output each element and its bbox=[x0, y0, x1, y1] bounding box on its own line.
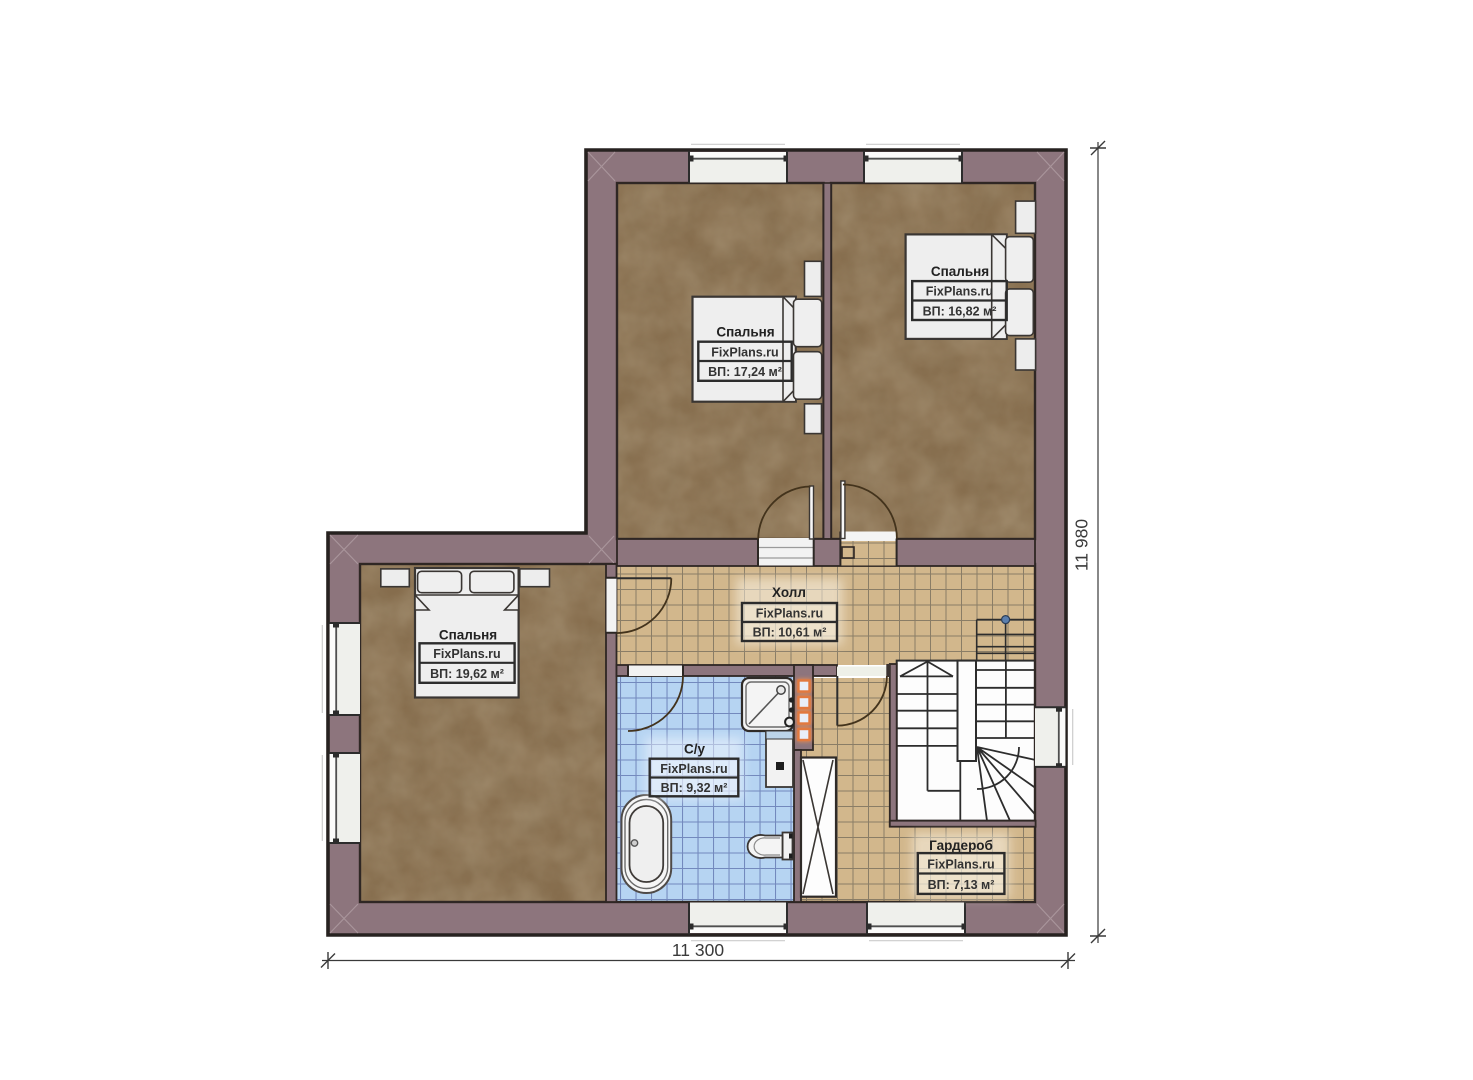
svg-text:FixPlans.ru: FixPlans.ru bbox=[711, 345, 778, 359]
svg-text:ВП: 17,24 м²: ВП: 17,24 м² bbox=[708, 365, 782, 379]
svg-text:ВП: 10,61 м²: ВП: 10,61 м² bbox=[753, 626, 827, 640]
svg-text:ВП: 19,62 м²: ВП: 19,62 м² bbox=[430, 667, 504, 681]
svg-text:11 300: 11 300 bbox=[672, 940, 724, 960]
svg-text:ВП: 9,32 м²: ВП: 9,32 м² bbox=[661, 781, 728, 795]
svg-text:FixPlans.ru: FixPlans.ru bbox=[433, 647, 500, 661]
svg-text:Спальня: Спальня bbox=[439, 628, 497, 643]
svg-text:FixPlans.ru: FixPlans.ru bbox=[927, 858, 994, 872]
svg-text:ВП: 16,82 м²: ВП: 16,82 м² bbox=[923, 304, 997, 318]
svg-text:FixPlans.ru: FixPlans.ru bbox=[660, 762, 727, 776]
svg-text:Спальня: Спальня bbox=[931, 264, 989, 279]
svg-text:Спальня: Спальня bbox=[716, 325, 774, 340]
svg-text:FixPlans.ru: FixPlans.ru bbox=[926, 285, 993, 299]
svg-text:С/у: С/у bbox=[684, 742, 706, 757]
svg-text:Холл: Холл bbox=[772, 585, 806, 600]
svg-text:Гардероб: Гардероб bbox=[929, 838, 993, 853]
svg-text:11 980: 11 980 bbox=[1072, 519, 1092, 571]
svg-text:ВП: 7,13 м²: ВП: 7,13 м² bbox=[928, 878, 995, 892]
svg-text:FixPlans.ru: FixPlans.ru bbox=[756, 606, 823, 620]
